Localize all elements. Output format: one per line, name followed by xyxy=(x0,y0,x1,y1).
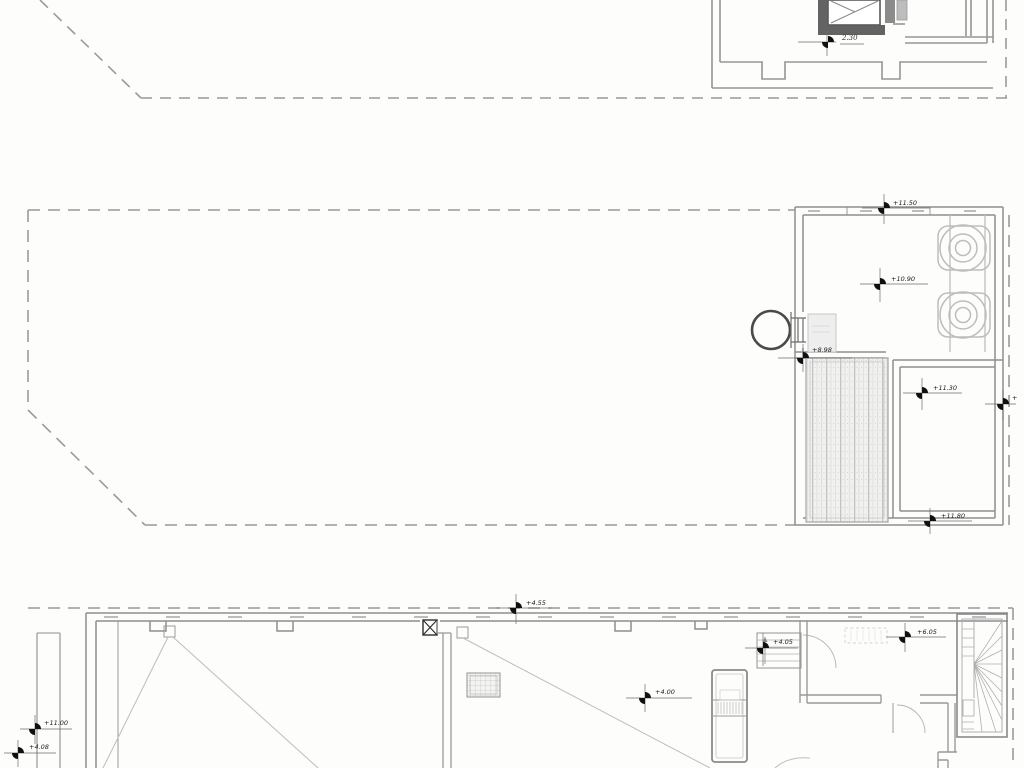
floor-plan-svg: 2.30 xyxy=(0,0,1024,768)
door-swing-arc xyxy=(803,635,836,668)
elevation-label-low-left-upper: +11.00 xyxy=(44,719,68,727)
elevation-label-low-upper-landing: +6.05 xyxy=(917,628,937,636)
dim-label-230: 2.30 xyxy=(841,34,858,42)
elevation-label-mid-room: +11.30 xyxy=(933,384,957,392)
elevation-label-low-left-lower: +4.08 xyxy=(29,743,49,751)
upper-plan: 2.30 xyxy=(40,0,1008,98)
winder-stair xyxy=(957,614,1007,737)
elevation-label-mid-center: +10.90 xyxy=(891,275,915,283)
lower-interior-wall-left xyxy=(437,621,451,768)
dome-balloon xyxy=(752,311,806,349)
elevation-label-mid-right-edge: + xyxy=(1012,394,1017,402)
door-swing-arc xyxy=(897,705,925,733)
access-stair xyxy=(757,633,836,668)
lower-plan: +4.55 +11.00 +4.08 +4.00 +4.05 +6.05 xyxy=(4,594,1013,768)
hatched-deck xyxy=(806,358,888,522)
column-x-marker xyxy=(423,620,437,635)
middle-plan: +11.50 +10.90 +8.98 +11.30 +11.80 + xyxy=(28,194,1017,534)
drawing-canvas: 2.30 xyxy=(0,0,1024,768)
elevation-label-mid-room-bottom: +11.80 xyxy=(941,512,965,520)
elevator-shaft xyxy=(818,0,907,35)
roof-vent-lower xyxy=(938,292,990,338)
overhead-dashed-element xyxy=(845,628,887,643)
elevation-label-low-landing: +4.05 xyxy=(773,638,793,646)
roof-slope-lines xyxy=(103,626,810,768)
hatched-skylight xyxy=(467,673,500,697)
elevation-label-mid-top: +11.50 xyxy=(893,199,917,207)
elevation-label-low-center: +4.00 xyxy=(655,688,675,696)
duct-shaft xyxy=(712,670,747,762)
lower-walls xyxy=(37,613,1008,768)
lower-dashed-boundary xyxy=(28,608,1013,768)
elevation-label-low-top: +4.55 xyxy=(526,599,546,607)
roof-vent-upper xyxy=(938,225,990,271)
elevation-label-mid-left: +8.98 xyxy=(812,346,832,354)
